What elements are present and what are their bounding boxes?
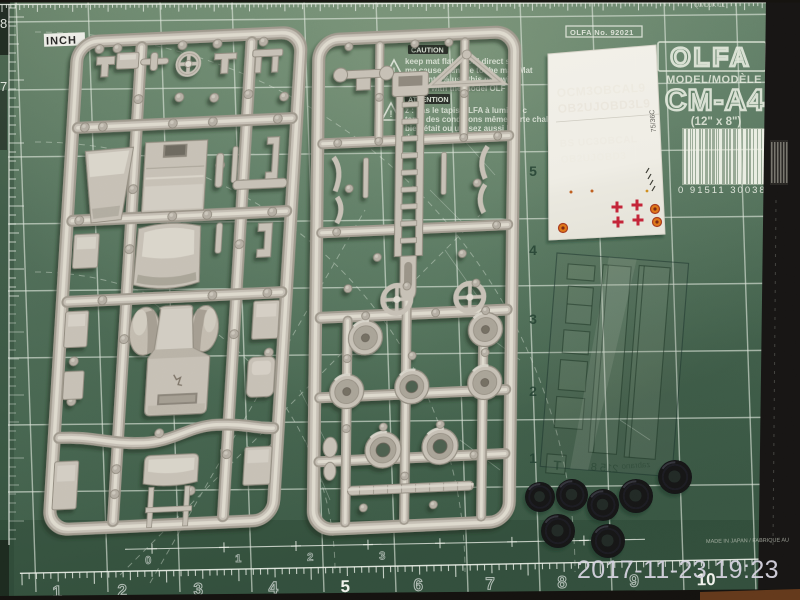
svg-text:2017-11-23 19:23: 2017-11-23 19:23 <box>577 556 779 584</box>
